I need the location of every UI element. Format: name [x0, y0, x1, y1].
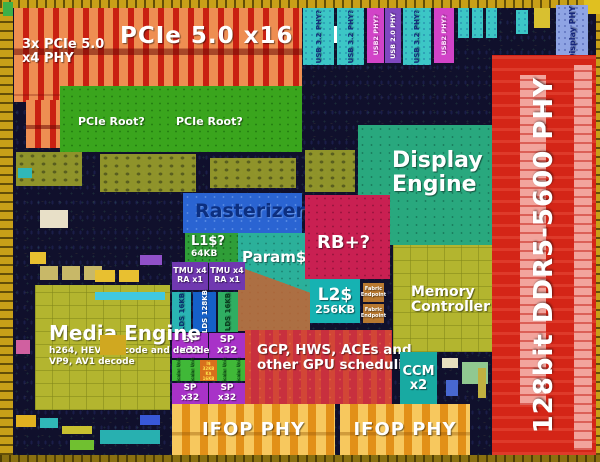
region-rb-plus: RB+?	[305, 195, 390, 279]
die-structure	[30, 252, 46, 264]
die-structure	[16, 340, 30, 354]
label-l2-size: 256KB	[315, 304, 355, 316]
region-ddr-phy: 128bit DDR5-5600 PHY	[492, 55, 596, 455]
label-l1-cache: L1$?	[191, 235, 225, 249]
die-structure	[40, 210, 68, 228]
region-ifop-phy: IFOP PHY	[340, 404, 470, 455]
label-display-engine: Display Engine	[392, 149, 483, 197]
label-l1-size: 64KB	[191, 250, 217, 260]
region-sp: SP x32	[209, 383, 245, 404]
region-sp: SP x32	[172, 383, 208, 404]
die-structure	[100, 154, 196, 192]
region-usb32-phy: USB 3.2 PHY?	[303, 8, 334, 65]
label-memory-controller: Memory Controller	[411, 285, 490, 315]
die-structure	[478, 368, 486, 398]
region-display-phy: Display PHY	[556, 5, 588, 62]
label-media-engine-sub: h264, HEVC encode and decode	[49, 347, 210, 357]
label-usb2-phy: USB2 PHY?	[440, 15, 448, 55]
die-structure	[70, 440, 94, 450]
region-gcp: GCP, HWS, ACEs and other GPU scheduling	[245, 330, 392, 404]
label-ifop-phy: IFOP PHY	[353, 420, 456, 439]
die-structure	[446, 380, 458, 396]
region-scalar-units: Scalar Unit Scalar Unit I$ 32KB K$ 16KB …	[172, 360, 245, 381]
region-lds-16: LDS 16KB	[218, 292, 238, 332]
die-structure	[95, 292, 165, 300]
die-edge-right	[596, 8, 600, 455]
label-usb32-phy: USB 3.2 PHY?	[347, 10, 355, 63]
label-usb2-phy: USB2 PHY?	[372, 15, 380, 55]
label-pcie-x4-phy: 3x PCIe 5.0 x4 PHY	[22, 38, 104, 66]
die-structure	[210, 158, 296, 188]
die-structure	[442, 358, 458, 368]
region-rasterizer: Rasterizer?	[183, 193, 302, 233]
die-shot-annotated: 3x PCIe 5.0 x4 PHY PCIe 5.0 x16 PHY PCIe…	[0, 0, 600, 462]
die-structure	[534, 8, 550, 28]
region-fabric-endpoint: Fabric Endpoint	[363, 304, 384, 323]
region-pcie-x4-phy-block	[26, 100, 62, 148]
die-structure	[516, 10, 528, 34]
region-usb2-phy: USB2 PHY?	[434, 8, 454, 63]
label-usb32-phy: USB 3.2 PHY?	[413, 10, 421, 63]
label-usb20-phy: USB 2.0 PHY	[389, 13, 397, 59]
region-pcie-root: PCIe Root? PCIe Root?	[60, 86, 302, 152]
die-structure	[40, 266, 58, 280]
die-structure	[95, 270, 115, 282]
label-rb-plus: RB+?	[317, 233, 370, 252]
region-fabric-endpoint: Fabric Endpoint	[363, 283, 384, 302]
label-pcie-root: PCIe Root?	[176, 116, 243, 128]
label-pcie-root: PCIe Root?	[78, 116, 145, 128]
region-usb32-phy: USB 3.2 PHY?	[403, 8, 431, 65]
die-structure	[305, 150, 355, 192]
label-rasterizer: Rasterizer?	[195, 201, 316, 222]
die-structure	[62, 426, 92, 434]
die-structure	[100, 335, 126, 355]
die-structure	[140, 415, 160, 425]
region-param-cache: Param$?	[238, 233, 310, 331]
region-usb2-phy: USB2 PHY?	[367, 8, 384, 63]
region-memory-controller: Memory Controller	[393, 245, 492, 352]
label-usb32-phy: USB 3.2 PHY?	[315, 10, 323, 63]
region-ifop-phy: IFOP PHY	[172, 404, 335, 455]
die-structure	[62, 266, 80, 280]
region-sp: SP x32	[209, 333, 245, 358]
label-media-engine-sub: VP9, AV1 decode	[49, 358, 135, 368]
region-l1-cache: L1$? 64KB	[185, 233, 238, 263]
die-structure	[486, 8, 497, 38]
region-l2-cache: L2$ 256KB	[310, 279, 360, 323]
die-structure	[472, 8, 483, 38]
label-ddr-phy: 128bit DDR5-5600 PHY	[529, 77, 559, 433]
die-structure	[16, 415, 36, 427]
label-gcp: GCP, HWS, ACEs and other GPU scheduling	[257, 343, 422, 372]
label-l2-cache: L2$	[318, 286, 353, 304]
die-structure	[140, 255, 162, 265]
die-structure	[100, 430, 160, 444]
region-usb20-phy: USB 2.0 PHY	[385, 8, 401, 63]
die-structure	[18, 168, 32, 178]
region-tmu: TMU x4 RA x1	[209, 262, 245, 290]
die-edge-left	[0, 8, 13, 455]
corner-mark	[3, 2, 13, 16]
label-display-phy: Display PHY	[568, 6, 577, 60]
die-structure	[119, 270, 139, 282]
region-usb32-phy: USB 3.2 PHY?	[337, 8, 364, 65]
die-edge-bottom	[0, 455, 600, 462]
region-ccm: CCM x2	[400, 352, 437, 406]
die-edge-top	[0, 0, 600, 8]
die-structure	[40, 418, 58, 428]
region-scalar-caches: I$ 32KB K$ 16KB	[200, 360, 217, 381]
die-structure	[458, 8, 469, 38]
label-ifop-phy: IFOP PHY	[202, 420, 305, 439]
region-tmu: TMU x4 RA x1	[172, 262, 208, 290]
